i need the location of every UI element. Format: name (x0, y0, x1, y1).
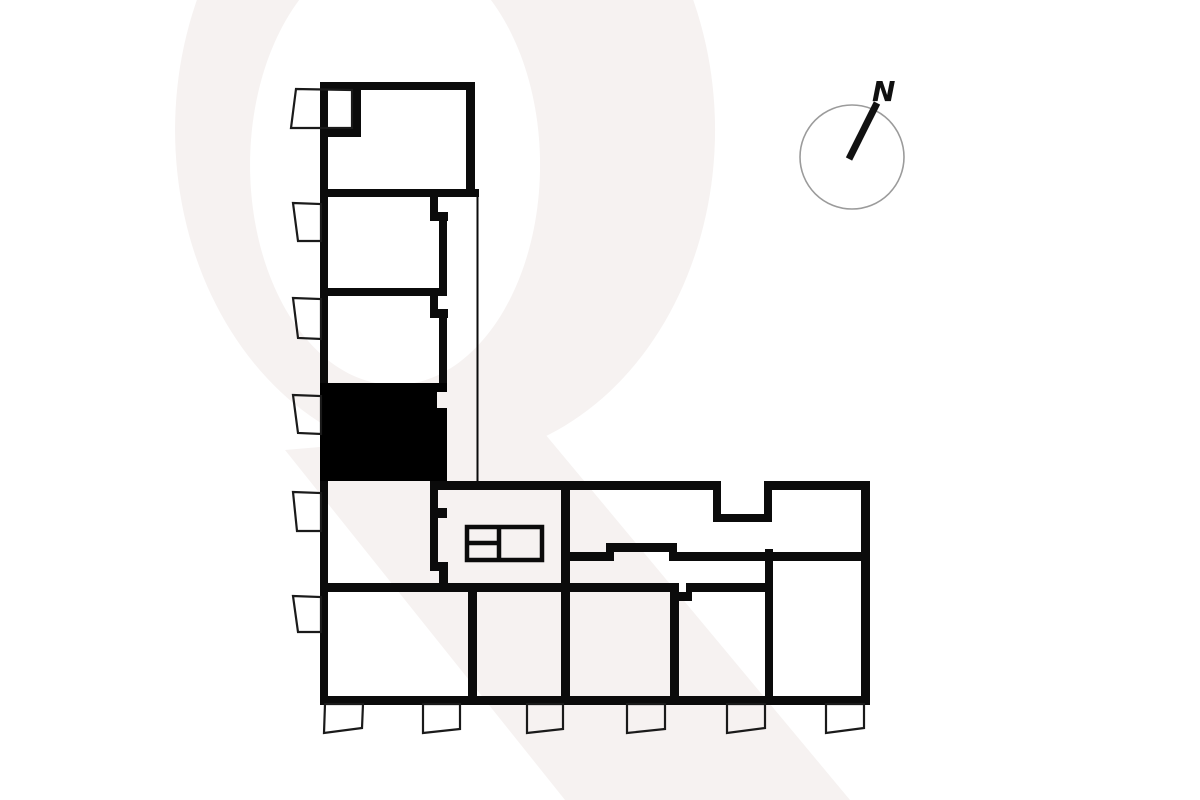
wall-divider-b1 (468, 592, 477, 696)
floor-plan-canvas: N (0, 0, 1200, 800)
wall-unit5-jog-h (430, 562, 448, 571)
wall-divider-unit2-unit3 (320, 288, 447, 296)
watermark (175, 0, 850, 800)
wall-topleft-step-h (320, 128, 361, 137)
highlighted-unit[interactable] (320, 383, 447, 481)
balcony-outline (423, 704, 460, 733)
wall-bottomrow-dip (670, 592, 692, 601)
balcony-outline (293, 492, 321, 531)
wall-unit3-right-lower (439, 309, 447, 383)
wall-bottomrow-top-b (686, 583, 773, 592)
north-needle-icon (849, 103, 877, 159)
balcony-outline (293, 203, 321, 241)
wall-top-unit-bottom (320, 189, 479, 197)
corridor-edge-line (477, 197, 479, 483)
wall-right-outer (861, 481, 870, 705)
north-label: N (872, 75, 895, 108)
balcony-outline (324, 704, 363, 733)
floor-plan-page: N (0, 0, 1200, 800)
wall-bottomrow-top-a (320, 583, 670, 592)
balcony-outline (826, 704, 864, 733)
wall-unit5-right (430, 488, 438, 571)
wall-unit5-tooth (438, 508, 447, 518)
balcony-outline (293, 596, 321, 632)
wall-top-unit-right (466, 82, 475, 197)
wall-divider-b4 (765, 549, 773, 696)
wall-wing-top-right (764, 481, 870, 490)
wall-notch-bottom (713, 514, 772, 522)
wall-unit5-jog-v (439, 571, 448, 585)
balcony-outline (293, 298, 321, 339)
wall-wing-top-left (430, 481, 721, 490)
compass: N (800, 75, 904, 209)
wall-zigzag-bar2 (606, 543, 677, 552)
wall-unit2-right-lower (439, 212, 447, 296)
wall-bottom-outer (320, 696, 870, 705)
